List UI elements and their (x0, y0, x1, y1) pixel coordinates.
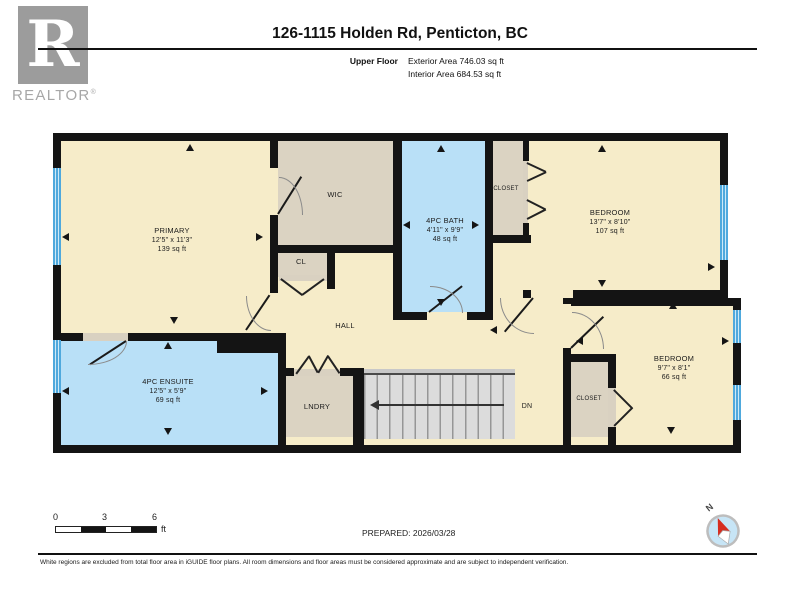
room-name: DN (512, 402, 542, 412)
door-opening (608, 388, 616, 427)
dimension-arrow (164, 428, 172, 435)
room-name: 4PC BATH (375, 216, 515, 226)
dimension-arrow (598, 145, 606, 152)
room-dims: 9'7" x 8'1" (604, 364, 744, 374)
scale-tick-6: 6 (152, 512, 157, 522)
dimension-arrow (186, 144, 194, 151)
stair-direction-arrow-icon (370, 400, 379, 410)
dimension-arrow (490, 326, 497, 334)
dimension-arrow (667, 427, 675, 434)
wall (523, 141, 529, 161)
room-name: WIC (305, 190, 365, 200)
room-label-closet-bottom: CLOSET (564, 395, 614, 403)
wall (270, 245, 402, 253)
dimension-arrow (722, 337, 729, 345)
dimension-arrow (669, 302, 677, 309)
wall (217, 333, 286, 353)
compass-north-label: N (704, 502, 715, 514)
dimension-arrow (62, 233, 69, 241)
door-opening (270, 168, 278, 215)
scale-bar (55, 526, 157, 533)
door-opening (270, 293, 278, 333)
wall (53, 133, 728, 141)
wall (286, 368, 294, 376)
disclaimer-text: White regions are excluded from total fl… (40, 559, 770, 566)
window (733, 385, 741, 420)
wall (278, 341, 286, 445)
room-area: 139 sq ft (102, 245, 242, 255)
wall (563, 298, 741, 306)
room-area: 66 sq ft (604, 373, 744, 383)
room-label-bath: 4PC BATH 4'11" x 9'9" 48 sq ft (375, 216, 515, 245)
room-name: HALL (315, 321, 375, 331)
room-label-wic: WIC (305, 190, 365, 200)
wall (608, 427, 616, 445)
room-name: CLOSET (564, 395, 614, 403)
wall (327, 245, 335, 289)
wall (353, 368, 364, 445)
room-label-ensuite: 4PC ENSUITE 12'5" x 5'9" 69 sq ft (98, 377, 238, 406)
room-name: PRIMARY (102, 226, 242, 236)
room-area: 48 sq ft (375, 235, 515, 245)
dimension-arrow (261, 387, 268, 395)
dimension-arrow (598, 280, 606, 287)
window (53, 340, 61, 393)
dimension-arrow (62, 387, 69, 395)
stair-direction-line (378, 404, 504, 406)
prepared-date: PREPARED: 2026/03/28 (362, 528, 455, 538)
room-label-primary: PRIMARY 12'5" x 11'3" 139 sq ft (102, 226, 242, 255)
dimension-arrow (437, 299, 445, 306)
window (720, 185, 728, 260)
room-label-hall: HALL (315, 321, 375, 331)
footer-divider (38, 553, 757, 555)
room-name: LNDRY (287, 402, 347, 412)
door-opening (531, 290, 573, 298)
dimension-arrow (256, 233, 263, 241)
room-name: CLOSET (481, 185, 531, 193)
scale-tick-3: 3 (102, 512, 107, 522)
room-label-closet-top: CLOSET (481, 185, 531, 193)
dimension-arrow (437, 145, 445, 152)
dimension-arrow (576, 337, 583, 345)
room-dims: 12'5" x 11'3" (102, 236, 242, 246)
room-dims: 13'7" x 8'10" (540, 218, 680, 228)
dimension-arrow (170, 317, 178, 324)
window (53, 168, 61, 265)
room-dims: 4'11" x 9'9" (375, 226, 515, 236)
scale-tick-0: 0 (53, 512, 58, 522)
room-name: 4PC ENSUITE (98, 377, 238, 387)
room-area: 69 sq ft (98, 396, 238, 406)
scale-unit-label: ft (161, 524, 166, 534)
door-opening (563, 304, 571, 348)
compass-icon: N (698, 496, 748, 554)
room-name: BEDROOM (604, 354, 744, 364)
wall (523, 223, 529, 243)
stairs-down-label: DN (512, 402, 542, 412)
dimension-arrow (708, 263, 715, 271)
room-area: 107 sq ft (540, 227, 680, 237)
room-label-lndry: LNDRY (287, 402, 347, 412)
room-name: CL (281, 257, 321, 267)
room-dims: 12'5" x 5'9" (98, 387, 238, 397)
wall (53, 445, 741, 453)
room-label-cl: CL (281, 257, 321, 267)
staircase (364, 373, 515, 439)
door-opening (83, 333, 128, 341)
room-label-bedroom-bottom: BEDROOM 9'7" x 8'1" 66 sq ft (604, 354, 744, 383)
dimension-arrow (164, 342, 172, 349)
room-name: BEDROOM (540, 208, 680, 218)
room-label-bedroom-top: BEDROOM 13'7" x 8'10" 107 sq ft (540, 208, 680, 237)
wall (340, 368, 353, 376)
door-opening (427, 312, 467, 320)
window (733, 310, 741, 343)
floor-plan-page: R REALTOR® 126-1115 Holden Rd, Penticton… (0, 0, 800, 600)
floor-plan: PRIMARY 12'5" x 11'3" 139 sq ft WIC CL 4… (0, 0, 800, 600)
